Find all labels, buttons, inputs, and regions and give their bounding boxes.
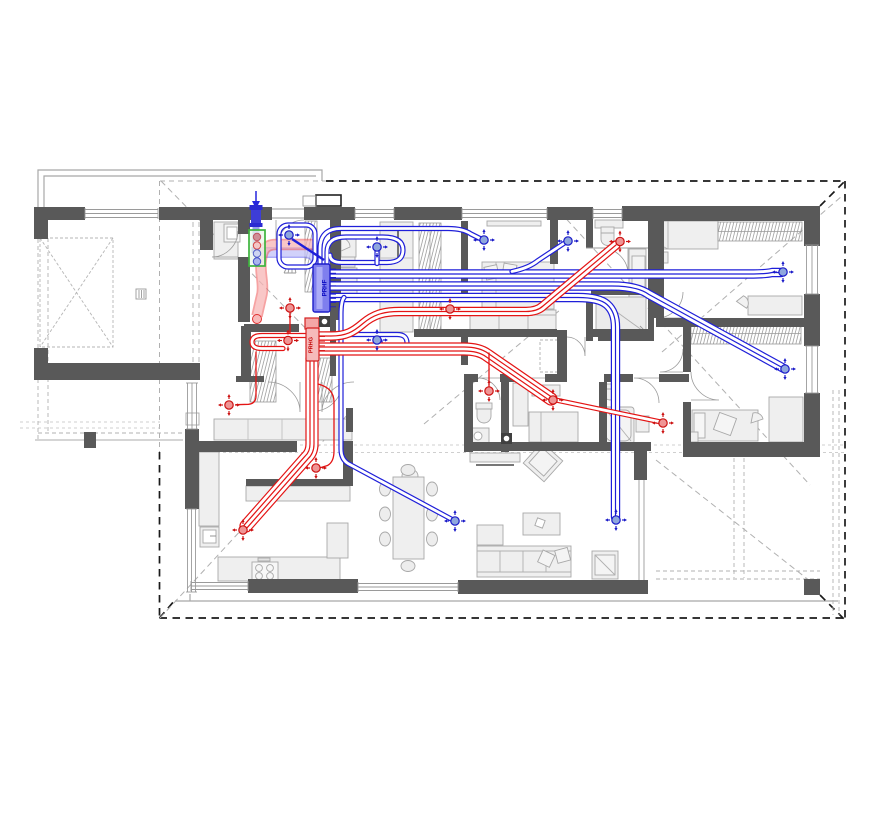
svg-text:PRHF: PRHF bbox=[322, 279, 329, 296]
svg-text:PRHG: PRHG bbox=[309, 337, 315, 353]
